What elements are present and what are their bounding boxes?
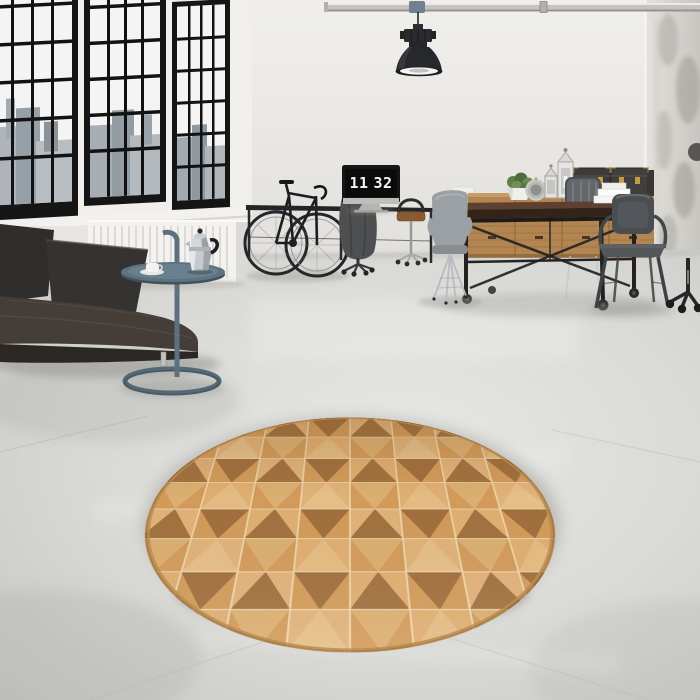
- room-photo: 11 32: [0, 0, 700, 700]
- sofa-leg: [161, 352, 166, 366]
- clock-display: 11 32: [345, 169, 397, 197]
- clock-minutes: 32: [374, 174, 393, 192]
- pipe-bracket: [409, 1, 425, 13]
- rug-pattern: [93, 417, 607, 652]
- clock-hours: 11: [349, 174, 368, 192]
- rug-surface: [93, 417, 607, 652]
- round-rug: [150, 396, 550, 622]
- factory-window-2: [84, 0, 166, 206]
- pillow: [0, 224, 54, 302]
- factory-window-3: [172, 0, 230, 210]
- factory-window-1: [0, 0, 78, 222]
